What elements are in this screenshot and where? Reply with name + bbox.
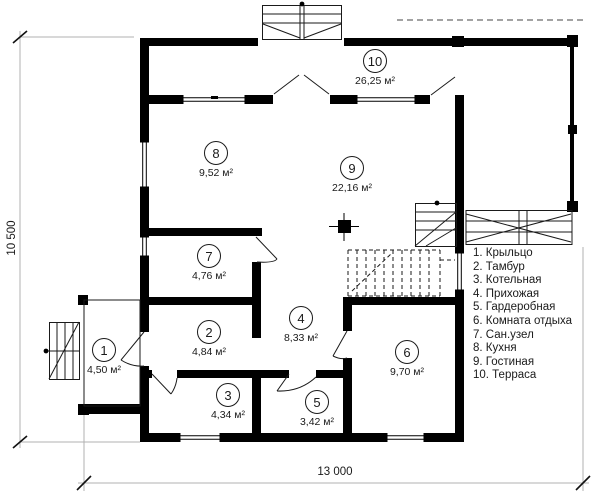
- stairs-north: [262, 2, 342, 40]
- room-area: 4,76 м²: [192, 270, 226, 282]
- room-number-circle: 10: [363, 49, 387, 73]
- room-number-circle: 7: [197, 244, 221, 268]
- room-label-10: 10 26,25 м²: [330, 49, 420, 87]
- column: [329, 213, 359, 241]
- room-area: 4,34 м²: [211, 409, 245, 421]
- room-number: 8: [212, 146, 219, 161]
- room-number: 9: [348, 161, 355, 176]
- room-number: 7: [205, 249, 212, 264]
- room-number: 1: [100, 343, 107, 358]
- room-number-circle: 6: [395, 340, 419, 364]
- dimension-height-label: 10 500: [6, 208, 20, 268]
- legend-item: 8. Кухня: [473, 342, 572, 356]
- legend-item: 5. Гардеробная: [473, 301, 572, 315]
- legend-item: 9. Гостиная: [473, 356, 572, 370]
- legend-item: 3. Котельная: [473, 274, 572, 288]
- room-area: 9,70 м²: [390, 366, 424, 378]
- room-label-1: 1 4,50 м²: [59, 338, 149, 376]
- dimension-width-label: 13 000: [295, 466, 375, 478]
- room-area: 26,25 м²: [355, 75, 395, 87]
- room-label-5: 5 3,42 м²: [272, 390, 362, 428]
- room-number-circle: 2: [197, 320, 221, 344]
- legend-item: 1. Крыльцо: [473, 247, 572, 261]
- room-number: 3: [224, 388, 231, 403]
- stairs-east: [466, 210, 572, 245]
- room-label-8: 8 9,52 м²: [171, 141, 261, 179]
- legend-item: 6. Комната отдыха: [473, 315, 572, 329]
- room-label-6: 6 9,70 м²: [362, 340, 452, 378]
- room-number-circle: 1: [92, 338, 116, 362]
- legend-item: 4. Прихожая: [473, 288, 572, 302]
- room-number-circle: 9: [340, 156, 364, 180]
- room-label-4: 4 8,33 м²: [256, 306, 346, 344]
- room-label-9: 9 22,16 м²: [307, 156, 397, 194]
- room-number: 5: [313, 395, 320, 410]
- floor-plan-page: 1 4,50 м² 2 4,84 м² 3 4,34 м² 4 8,33 м² …: [0, 0, 600, 502]
- room-number: 4: [297, 311, 304, 326]
- room-label-3: 3 4,34 м²: [183, 383, 273, 421]
- legend-item: 10. Терраса: [473, 369, 572, 383]
- room-number-circle: 8: [204, 141, 228, 165]
- room-number-circle: 5: [305, 390, 329, 414]
- legend-item: 2. Тамбур: [473, 261, 572, 275]
- room-number-circle: 4: [289, 306, 313, 330]
- room-label-2: 2 4,84 м²: [164, 320, 254, 358]
- stairs-interior: [348, 201, 457, 296]
- room-area: 8,33 м²: [284, 332, 318, 344]
- legend-item: 7. Сан.узел: [473, 329, 572, 343]
- room-area: 4,50 м²: [87, 364, 121, 376]
- room-label-7: 7 4,76 м²: [164, 244, 254, 282]
- room-number: 2: [205, 325, 212, 340]
- room-number: 10: [368, 54, 382, 69]
- room-area: 4,84 м²: [192, 346, 226, 358]
- room-area: 3,42 м²: [300, 416, 334, 428]
- room-number-circle: 3: [216, 383, 240, 407]
- room-number: 6: [403, 345, 410, 360]
- room-area: 9,52 м²: [199, 167, 233, 179]
- room-area: 22,16 м²: [332, 182, 372, 194]
- room-legend: 1. Крыльцо 2. Тамбур 3. Котельная 4. При…: [473, 247, 572, 383]
